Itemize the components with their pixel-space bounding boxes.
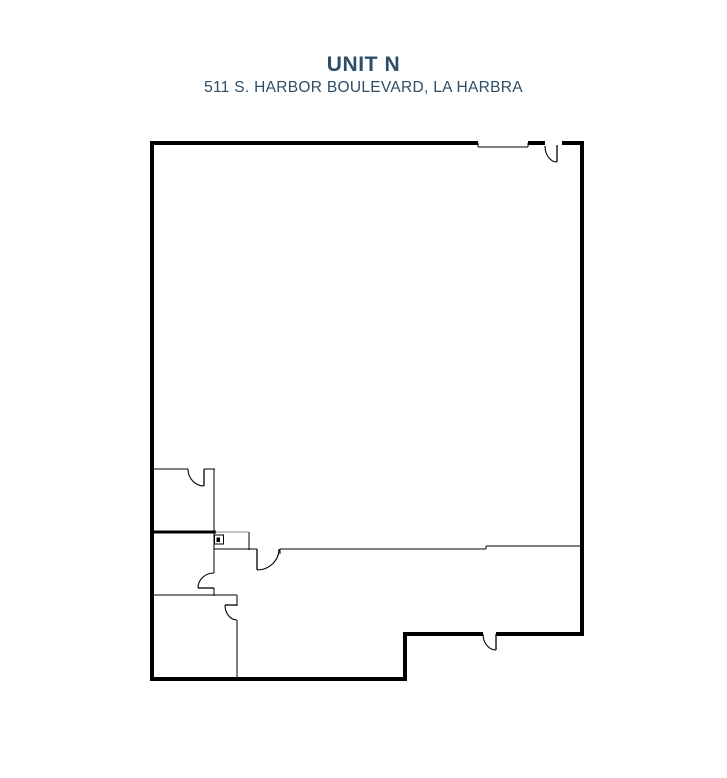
door-swing-arc bbox=[257, 549, 279, 570]
exterior-walls bbox=[150, 141, 584, 681]
door-swing-arc bbox=[483, 634, 496, 650]
storefront-window bbox=[478, 143, 528, 147]
panel-dot bbox=[217, 538, 221, 543]
interior-walls bbox=[152, 469, 584, 681]
utility-panel bbox=[215, 535, 224, 544]
door-swing-arc bbox=[188, 469, 204, 486]
door-swing-arc bbox=[225, 605, 237, 620]
door-swing-arcs bbox=[188, 146, 557, 650]
door-leaves bbox=[198, 145, 557, 650]
door-swing-arc bbox=[545, 146, 557, 162]
floorplan-page: UNIT N 511 S. HARBOR BOULEVARD, LA HARBR… bbox=[0, 0, 727, 778]
door-swing-arc bbox=[198, 573, 214, 588]
floorplan-svg bbox=[0, 0, 727, 778]
